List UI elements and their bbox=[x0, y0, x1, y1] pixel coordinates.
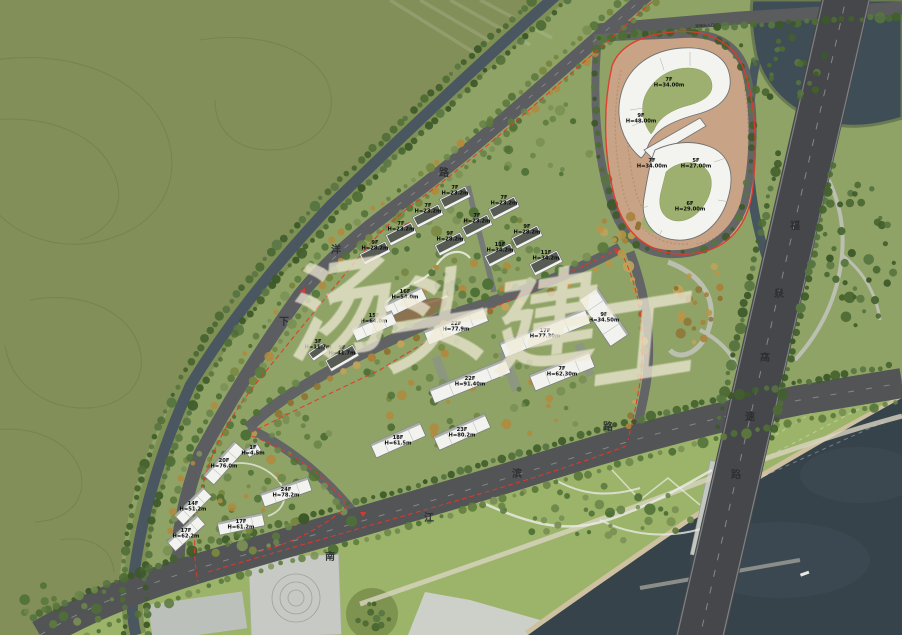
tree bbox=[577, 431, 585, 439]
tree bbox=[545, 16, 551, 22]
tree bbox=[166, 467, 170, 471]
tree bbox=[248, 344, 252, 348]
tree bbox=[521, 5, 528, 12]
tree bbox=[278, 561, 283, 566]
tree bbox=[607, 465, 613, 471]
tree bbox=[273, 539, 279, 545]
road-name-char: 路 bbox=[439, 166, 450, 179]
tree bbox=[249, 377, 258, 386]
tree bbox=[314, 440, 323, 449]
tree bbox=[637, 455, 643, 461]
tree bbox=[196, 589, 201, 594]
tree bbox=[726, 360, 737, 371]
tree bbox=[769, 76, 774, 81]
tree bbox=[637, 416, 645, 424]
tree bbox=[126, 523, 133, 530]
tree bbox=[91, 604, 102, 615]
tree bbox=[457, 94, 462, 99]
tree bbox=[154, 423, 162, 431]
tree bbox=[267, 319, 271, 323]
tree bbox=[266, 455, 276, 465]
tree bbox=[831, 17, 837, 23]
tree bbox=[815, 376, 822, 383]
tree bbox=[663, 409, 670, 416]
tree bbox=[892, 12, 901, 21]
tree bbox=[165, 456, 176, 467]
tree bbox=[628, 232, 635, 239]
tree bbox=[470, 80, 478, 88]
tree bbox=[298, 555, 306, 563]
tree bbox=[745, 391, 751, 397]
tree bbox=[247, 311, 254, 318]
tree bbox=[292, 380, 300, 388]
tree bbox=[373, 174, 379, 180]
tree bbox=[122, 605, 128, 611]
tree bbox=[431, 226, 442, 237]
tree bbox=[255, 262, 264, 271]
tree bbox=[397, 119, 404, 126]
tree bbox=[444, 154, 451, 161]
tree bbox=[186, 444, 194, 452]
tree bbox=[188, 400, 199, 411]
tree bbox=[122, 567, 128, 573]
tree bbox=[191, 435, 199, 443]
tree bbox=[384, 529, 391, 536]
tree bbox=[563, 49, 568, 54]
tree bbox=[423, 479, 428, 484]
tree bbox=[206, 583, 211, 588]
tree bbox=[144, 608, 150, 614]
tree bbox=[657, 411, 662, 416]
tree bbox=[632, 241, 640, 249]
tree bbox=[276, 431, 281, 436]
tree bbox=[91, 586, 98, 593]
tree bbox=[477, 74, 483, 80]
tree bbox=[869, 367, 875, 373]
tree bbox=[491, 458, 496, 463]
tree bbox=[175, 434, 183, 442]
tree bbox=[521, 168, 529, 176]
tree bbox=[397, 188, 401, 192]
tree bbox=[602, 218, 607, 223]
tree bbox=[389, 491, 394, 496]
tree bbox=[527, 431, 533, 437]
tree bbox=[352, 165, 357, 170]
tree bbox=[427, 89, 434, 96]
tree bbox=[889, 269, 897, 277]
tree bbox=[560, 167, 565, 172]
tree bbox=[672, 527, 679, 534]
tree bbox=[302, 415, 309, 422]
tree bbox=[253, 409, 260, 416]
tree bbox=[595, 130, 601, 136]
tree bbox=[41, 607, 47, 613]
tree bbox=[813, 242, 819, 248]
tree bbox=[255, 367, 266, 378]
tree bbox=[418, 171, 424, 177]
tree bbox=[110, 597, 114, 601]
tree bbox=[253, 333, 260, 340]
tree bbox=[873, 266, 881, 274]
tree bbox=[705, 28, 710, 33]
tree bbox=[196, 451, 202, 457]
tree bbox=[124, 614, 128, 618]
tree bbox=[699, 399, 705, 405]
tree bbox=[191, 461, 196, 466]
tree bbox=[509, 16, 516, 23]
tree bbox=[790, 338, 796, 344]
tree bbox=[717, 296, 722, 301]
tree bbox=[526, 450, 533, 457]
tree bbox=[243, 351, 248, 356]
tree bbox=[582, 25, 592, 35]
tree bbox=[257, 296, 265, 304]
tree bbox=[487, 118, 494, 125]
tree bbox=[718, 395, 727, 404]
tree bbox=[340, 203, 348, 211]
tree bbox=[487, 33, 494, 40]
tree bbox=[583, 495, 589, 501]
tree bbox=[763, 424, 770, 431]
tree bbox=[856, 295, 864, 303]
tree bbox=[138, 476, 145, 483]
tree bbox=[811, 251, 818, 258]
tree bbox=[224, 339, 232, 347]
tree bbox=[780, 46, 785, 51]
tree bbox=[764, 385, 769, 390]
tree bbox=[793, 329, 800, 336]
tree bbox=[592, 44, 601, 53]
tree bbox=[710, 397, 717, 404]
tree bbox=[119, 587, 126, 594]
tree bbox=[532, 486, 539, 493]
tree bbox=[788, 34, 795, 41]
tree bbox=[300, 464, 307, 471]
tree bbox=[750, 266, 756, 272]
tree bbox=[464, 465, 472, 473]
tree bbox=[554, 522, 561, 529]
tree bbox=[266, 397, 273, 404]
tree bbox=[546, 404, 551, 409]
tree bbox=[245, 386, 253, 394]
tree bbox=[114, 580, 118, 584]
tree bbox=[498, 455, 507, 464]
tree bbox=[625, 458, 633, 466]
tree bbox=[387, 617, 392, 622]
tree bbox=[358, 156, 365, 163]
tree bbox=[366, 179, 373, 186]
tree bbox=[392, 154, 398, 160]
tree bbox=[124, 540, 131, 547]
tree bbox=[735, 213, 743, 221]
tree bbox=[203, 419, 208, 424]
tree bbox=[559, 515, 565, 521]
tree bbox=[405, 522, 413, 530]
tree bbox=[59, 611, 69, 621]
tree bbox=[310, 201, 321, 212]
tree bbox=[268, 563, 274, 569]
tree bbox=[789, 348, 796, 355]
tree bbox=[708, 317, 713, 322]
tree bbox=[319, 509, 325, 515]
tree bbox=[417, 102, 422, 107]
tree bbox=[163, 409, 167, 413]
tree bbox=[593, 267, 598, 272]
tree bbox=[734, 334, 741, 341]
tree bbox=[838, 16, 844, 22]
tree bbox=[731, 227, 735, 231]
tree bbox=[187, 410, 192, 415]
tree bbox=[874, 219, 881, 226]
tree bbox=[436, 109, 445, 118]
tree bbox=[658, 450, 663, 455]
tree bbox=[533, 247, 540, 254]
tree bbox=[475, 463, 481, 469]
tree bbox=[508, 452, 516, 460]
tree bbox=[268, 281, 276, 289]
tree bbox=[474, 45, 482, 53]
tree bbox=[372, 602, 377, 607]
tree bbox=[278, 386, 286, 394]
tree bbox=[797, 379, 802, 384]
tree bbox=[519, 90, 524, 95]
tree bbox=[697, 437, 708, 448]
tree bbox=[591, 84, 597, 90]
tree bbox=[871, 296, 879, 304]
tree bbox=[495, 108, 502, 115]
tree bbox=[846, 199, 854, 207]
tree bbox=[346, 516, 357, 527]
tree bbox=[148, 526, 154, 532]
tree bbox=[584, 508, 589, 513]
tree bbox=[712, 240, 719, 247]
tree bbox=[382, 133, 391, 142]
tree bbox=[185, 590, 192, 597]
tree bbox=[596, 142, 602, 148]
tree bbox=[644, 504, 655, 515]
tree bbox=[207, 327, 214, 334]
tree bbox=[440, 184, 444, 188]
tree bbox=[197, 427, 203, 433]
tree bbox=[749, 121, 757, 129]
tree bbox=[571, 41, 576, 46]
tree bbox=[536, 138, 545, 147]
tree bbox=[893, 400, 898, 405]
tree bbox=[767, 63, 772, 68]
tree bbox=[449, 72, 453, 76]
tree bbox=[700, 335, 708, 343]
tree bbox=[606, 187, 613, 194]
tree bbox=[404, 246, 410, 252]
tree bbox=[731, 23, 738, 30]
tree bbox=[253, 307, 257, 311]
tree bbox=[831, 246, 836, 251]
tree bbox=[878, 366, 883, 371]
tree bbox=[646, 411, 657, 422]
tree bbox=[129, 504, 134, 509]
tree bbox=[554, 418, 558, 422]
tree bbox=[216, 393, 222, 399]
tree bbox=[237, 540, 248, 551]
tree bbox=[804, 18, 809, 23]
tree bbox=[128, 572, 135, 579]
road-name-char: 速 bbox=[745, 410, 755, 423]
road-name-char: 南 bbox=[325, 550, 335, 563]
tree bbox=[516, 257, 521, 262]
tree bbox=[455, 63, 461, 69]
tree bbox=[593, 58, 599, 64]
tree bbox=[515, 449, 523, 457]
tree bbox=[751, 57, 756, 62]
tree bbox=[219, 579, 224, 584]
tree bbox=[773, 57, 778, 62]
tree bbox=[416, 233, 421, 238]
tree bbox=[569, 437, 574, 442]
tree bbox=[328, 237, 335, 244]
tree bbox=[456, 467, 464, 475]
tree bbox=[490, 497, 498, 505]
tree bbox=[529, 26, 535, 32]
tree bbox=[616, 506, 625, 515]
tree bbox=[244, 533, 251, 540]
tree bbox=[751, 256, 757, 262]
tree bbox=[860, 366, 866, 372]
tree bbox=[548, 105, 554, 111]
tree bbox=[167, 398, 177, 408]
tree bbox=[275, 473, 279, 477]
tree bbox=[781, 374, 788, 381]
tree bbox=[304, 434, 310, 440]
tree bbox=[823, 232, 828, 237]
tree bbox=[797, 418, 801, 422]
tree bbox=[321, 483, 328, 490]
tree bbox=[459, 506, 467, 514]
tree bbox=[145, 551, 153, 559]
tree bbox=[768, 186, 774, 192]
tree bbox=[776, 21, 784, 29]
tree bbox=[181, 553, 185, 557]
tree bbox=[103, 580, 111, 588]
tree bbox=[851, 368, 857, 374]
tree bbox=[245, 570, 252, 577]
tree bbox=[314, 383, 321, 390]
tree bbox=[686, 273, 691, 278]
tree bbox=[75, 591, 84, 600]
tree bbox=[364, 537, 369, 542]
tree bbox=[267, 524, 272, 529]
tree bbox=[665, 493, 670, 498]
tree bbox=[685, 295, 693, 303]
tree bbox=[770, 425, 778, 433]
tree bbox=[461, 59, 467, 65]
tree bbox=[531, 105, 539, 113]
tree bbox=[155, 563, 162, 570]
tree bbox=[212, 321, 218, 327]
tree bbox=[618, 223, 625, 230]
tree bbox=[289, 504, 296, 511]
tree bbox=[344, 171, 350, 177]
tree bbox=[262, 325, 266, 329]
tree bbox=[448, 471, 455, 478]
tree bbox=[231, 330, 239, 338]
tree bbox=[827, 171, 833, 177]
tree bbox=[837, 201, 843, 207]
tree bbox=[773, 405, 783, 415]
tree bbox=[442, 76, 450, 84]
tree bbox=[848, 249, 856, 257]
tree bbox=[97, 629, 101, 633]
tree bbox=[691, 400, 699, 408]
tree bbox=[759, 22, 764, 27]
tree bbox=[714, 270, 720, 276]
tree bbox=[597, 469, 602, 474]
tree bbox=[618, 31, 627, 40]
tree bbox=[626, 212, 635, 221]
tree bbox=[729, 340, 740, 351]
tree bbox=[447, 513, 453, 519]
tree bbox=[809, 416, 814, 421]
tree bbox=[455, 171, 463, 179]
tree bbox=[607, 511, 613, 517]
tree bbox=[162, 474, 168, 480]
tree bbox=[815, 224, 823, 232]
tree bbox=[769, 435, 775, 441]
tree bbox=[120, 597, 126, 603]
tree bbox=[353, 539, 359, 545]
tree bbox=[456, 212, 463, 219]
tree bbox=[512, 494, 516, 498]
tree bbox=[329, 490, 333, 494]
tree bbox=[381, 202, 385, 206]
tree bbox=[541, 517, 547, 523]
tree bbox=[767, 93, 774, 100]
tree bbox=[574, 471, 583, 480]
tree bbox=[436, 84, 443, 91]
tree bbox=[866, 277, 872, 283]
tree bbox=[288, 400, 294, 406]
tree bbox=[194, 393, 201, 400]
tree bbox=[587, 530, 591, 534]
tree bbox=[146, 542, 151, 547]
tree bbox=[826, 200, 834, 208]
tree bbox=[536, 20, 547, 31]
tree bbox=[757, 229, 764, 236]
tree bbox=[183, 418, 191, 426]
tree bbox=[19, 594, 30, 605]
tree bbox=[762, 212, 770, 220]
tree bbox=[373, 615, 381, 623]
tree bbox=[512, 45, 516, 49]
tree bbox=[368, 144, 376, 152]
tree bbox=[493, 137, 502, 146]
tree bbox=[553, 479, 558, 484]
tree bbox=[821, 52, 828, 59]
tree bbox=[749, 159, 753, 163]
tree bbox=[594, 427, 601, 434]
tree bbox=[328, 216, 336, 224]
tree bbox=[178, 375, 183, 380]
tree bbox=[81, 603, 87, 609]
tree bbox=[353, 219, 360, 226]
tree bbox=[134, 485, 140, 491]
road-name-char: 江 bbox=[424, 511, 434, 524]
tree bbox=[367, 602, 371, 606]
tree bbox=[764, 203, 770, 209]
tree bbox=[575, 532, 579, 536]
tree bbox=[310, 511, 316, 517]
tree bbox=[342, 541, 348, 547]
tree bbox=[744, 292, 751, 299]
